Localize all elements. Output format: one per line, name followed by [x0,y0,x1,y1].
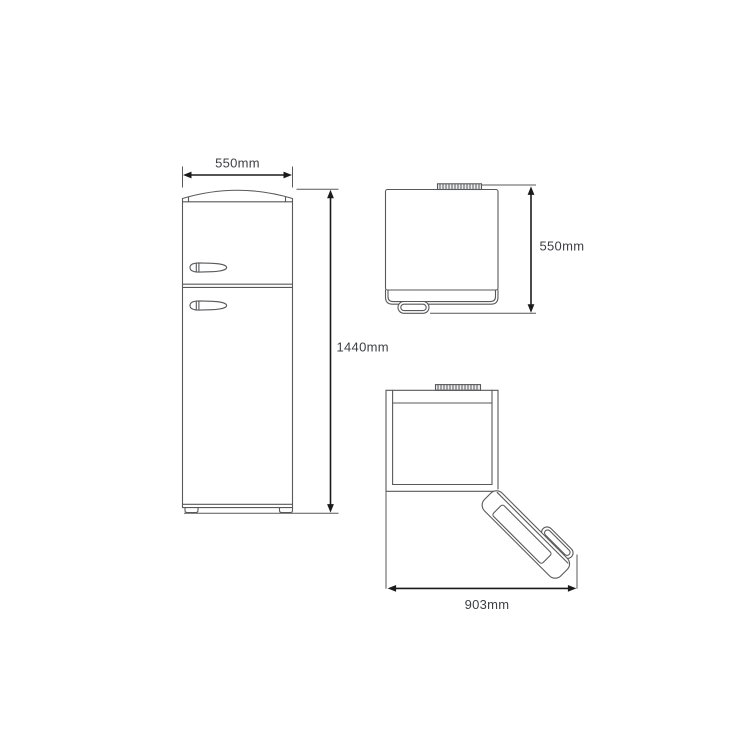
top-view-door-open [386,385,580,582]
front-width-label: 550mm [215,156,260,171]
open-hinge-strip [436,385,481,391]
diagram-canvas: 550mm 1440mm [0,0,750,750]
arrowhead-right [284,172,293,179]
arrowhead-down [327,504,334,512]
closed-depth-label: 550mm [540,239,585,254]
front-width-dimension: 550mm [183,156,293,188]
closed-cabinet-outline [386,190,499,291]
front-right-foot [280,508,293,513]
front-top-band [183,197,292,202]
front-height-dimension: 1440mm [184,189,389,513]
door-divider-line [183,284,293,287]
closed-depth-dimension: 550mm [430,185,584,313]
freezer-door-handle [190,263,227,272]
fridge-front-view [183,190,293,512]
arrowhead-left [183,172,192,179]
open-door-panel [479,481,580,582]
front-height-label: 1440mm [337,340,389,355]
open-cabinet-outline [386,390,498,491]
open-depth-label: 903mm [465,597,510,612]
arrowhead-right [568,585,577,592]
closed-hinge-strip [438,184,482,190]
front-left-foot [185,508,198,513]
arrowhead-up [327,190,334,199]
front-body-outline [183,190,293,507]
closed-door-handle [398,302,429,314]
arrowhead-up [528,186,535,195]
fridge-door-handle [190,301,227,310]
arrowhead-left [388,585,397,592]
arrowhead-down [528,304,535,313]
top-view-door-closed [386,184,499,313]
fridge-dimension-diagram: 550mm 1440mm [0,0,750,750]
